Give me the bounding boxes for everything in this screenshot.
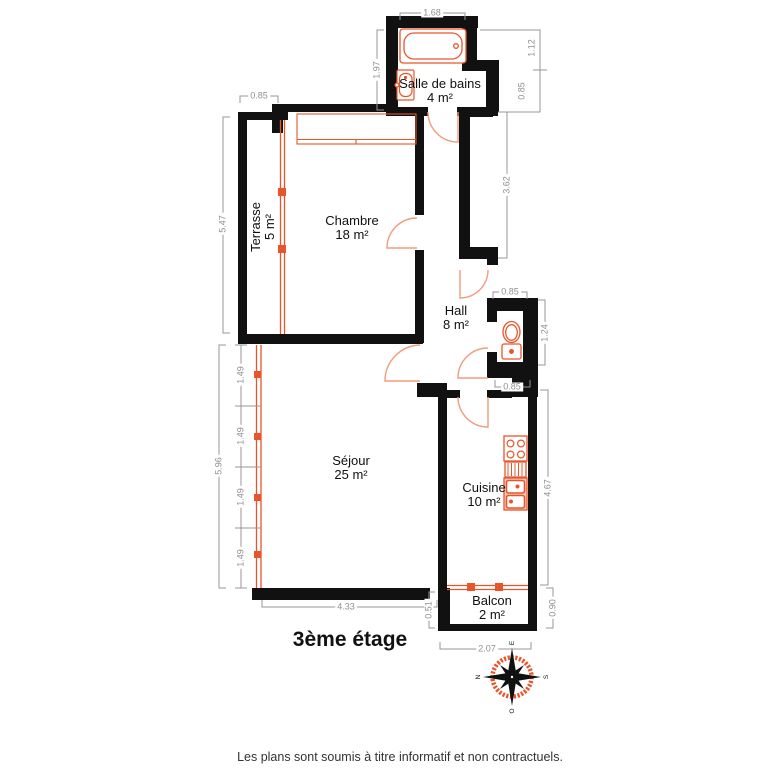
room-name: Salle de bains (399, 77, 481, 91)
window-post (278, 188, 286, 196)
wall (528, 588, 537, 630)
room-name: Cuisine (462, 481, 505, 495)
kitchen-door (458, 397, 488, 427)
compass-south-label: S (543, 674, 550, 679)
kitchen-appliances-icon (504, 436, 527, 510)
room-area: 25 m² (332, 468, 370, 482)
room-area: 5 m² (263, 202, 277, 252)
bathtub-icon (400, 29, 466, 63)
disclaimer-text: Les plans sont soumis à titre informatif… (237, 750, 563, 764)
window-post (467, 583, 475, 591)
dim-bath-top: 1.68 (421, 9, 443, 18)
wall (523, 298, 538, 378)
window-post (495, 583, 503, 591)
bedroom-door (387, 218, 417, 248)
wall (252, 588, 430, 600)
dim-balcony-bottom: 2.07 (476, 645, 498, 654)
window-post (254, 371, 261, 378)
toilet-icon (502, 322, 521, 360)
dim-duct-right: 3.62 (503, 174, 512, 196)
dim-balcony-right: 0.90 (549, 597, 558, 619)
room-area: 4 m² (399, 91, 481, 105)
compass-star (483, 648, 541, 706)
dim-balcony-left: 0.51 (425, 599, 434, 621)
wall (447, 390, 460, 398)
bed-icon (297, 114, 416, 144)
wall (238, 112, 247, 342)
room-area: 10 m² (462, 495, 505, 509)
dim-living-left-seg2: 1.49 (237, 425, 246, 447)
room-label-hall: Hall 8 m² (443, 304, 469, 332)
dim-terrace-left: 5.47 (219, 213, 228, 235)
wall (459, 107, 493, 117)
floor-title: 3ème étage (293, 628, 407, 652)
room-area: 18 m² (325, 228, 378, 242)
walls (238, 16, 538, 631)
room-label-terrace: Terrasse 5 m² (249, 202, 277, 252)
wall (487, 298, 497, 322)
dim-bath-left: 1.97 (373, 59, 382, 81)
dim-bath-right-upper: 1.12 (528, 37, 537, 59)
wall (459, 112, 470, 258)
wall (386, 16, 398, 112)
room-label-balcony: Balcon 2 m² (472, 594, 512, 622)
room-name: Terrasse (249, 202, 263, 252)
compass-east-label: E (509, 640, 516, 645)
floor-plan-drawing: N E S O (0, 0, 768, 768)
wall (438, 588, 450, 630)
doors (385, 112, 488, 427)
window-post (254, 494, 261, 501)
dim-wc-top: 0.85 (499, 288, 521, 297)
dim-kitchen-right: 4.67 (544, 477, 553, 499)
wc-door (458, 348, 488, 378)
dim-living-left-seg1: 1.49 (237, 364, 246, 386)
room-name: Chambre (325, 214, 378, 228)
window-post (254, 433, 261, 440)
room-label-bedroom: Chambre 18 m² (325, 214, 378, 242)
wall (272, 104, 388, 112)
dim-bath-right-lower: 0.85 (518, 80, 527, 102)
dim-wc-right: 1.24 (541, 322, 550, 344)
room-name: Balcon (472, 594, 512, 608)
compass-west-label: O (509, 708, 516, 713)
dim-living-left-total: 5.96 (215, 455, 224, 477)
wall (528, 390, 537, 590)
room-name: Hall (443, 304, 469, 318)
floor-plan-page: N E S O Salle de bains 4 m² Chambre 18 m… (0, 0, 768, 768)
room-label-bathroom: Salle de bains 4 m² (399, 77, 481, 105)
bathroom-door (428, 112, 458, 142)
room-label-living: Séjour 25 m² (332, 454, 370, 482)
corridor-door (460, 270, 488, 298)
wall (238, 334, 423, 344)
wall (438, 390, 447, 590)
dim-living-left-seg3: 1.49 (237, 486, 246, 508)
wall (487, 247, 498, 265)
room-label-kitchen: Cuisine 10 m² (462, 481, 505, 509)
wall (415, 250, 424, 343)
room-area: 2 m² (472, 608, 512, 622)
dim-living-bottom: 4.33 (335, 603, 357, 612)
dim-terrace-top: 0.85 (248, 92, 270, 101)
window-post (278, 245, 286, 253)
wall (486, 60, 499, 112)
room-name: Séjour (332, 454, 370, 468)
dim-wc-bottom: 0.85 (501, 383, 523, 392)
room-area: 8 m² (443, 318, 469, 332)
compass-north-label: N (475, 674, 482, 679)
wall (438, 624, 537, 631)
dim-living-left-seg4: 1.49 (237, 547, 246, 569)
living-door (385, 345, 420, 381)
window-post (254, 551, 261, 558)
sink-basin (507, 481, 525, 494)
